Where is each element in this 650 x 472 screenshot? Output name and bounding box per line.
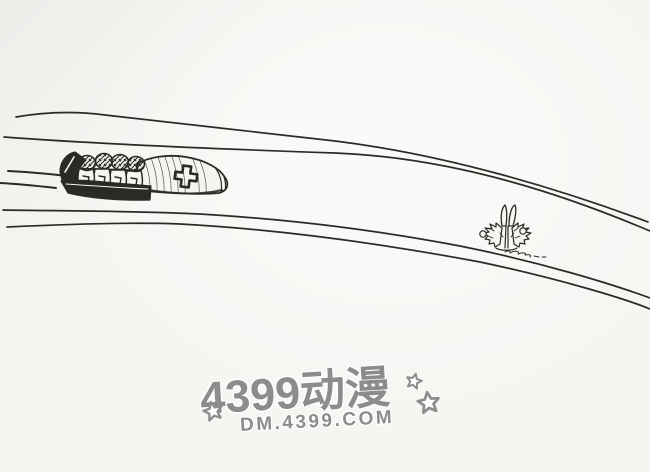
star-icon: [403, 370, 425, 392]
bush-top-leaf: [501, 205, 506, 226]
bush-top-leaf: [509, 205, 516, 226]
track-lower-edge-outer-line: [7, 223, 650, 309]
bush-berry: [480, 231, 486, 237]
speed-line: [8, 171, 68, 176]
bush: [480, 205, 546, 257]
ground-scribble: [505, 251, 546, 257]
helmet: [112, 155, 129, 170]
track-lower-edge: [3, 210, 650, 309]
track-upper-edge-outer-line: [16, 113, 648, 222]
speed-line: [0, 183, 56, 188]
illustration-canvas: 4399动漫 DM.4399.COM: [0, 0, 650, 472]
helmet: [96, 154, 113, 169]
helmet: [128, 157, 145, 172]
bobsled: [0, 152, 228, 200]
bush-right-leaf: [512, 223, 531, 247]
star-icon: [414, 388, 442, 416]
speed-lines: [0, 171, 68, 188]
watermark: 4399动漫 DM.4399.COM: [190, 366, 490, 441]
bush-berry: [520, 228, 526, 234]
